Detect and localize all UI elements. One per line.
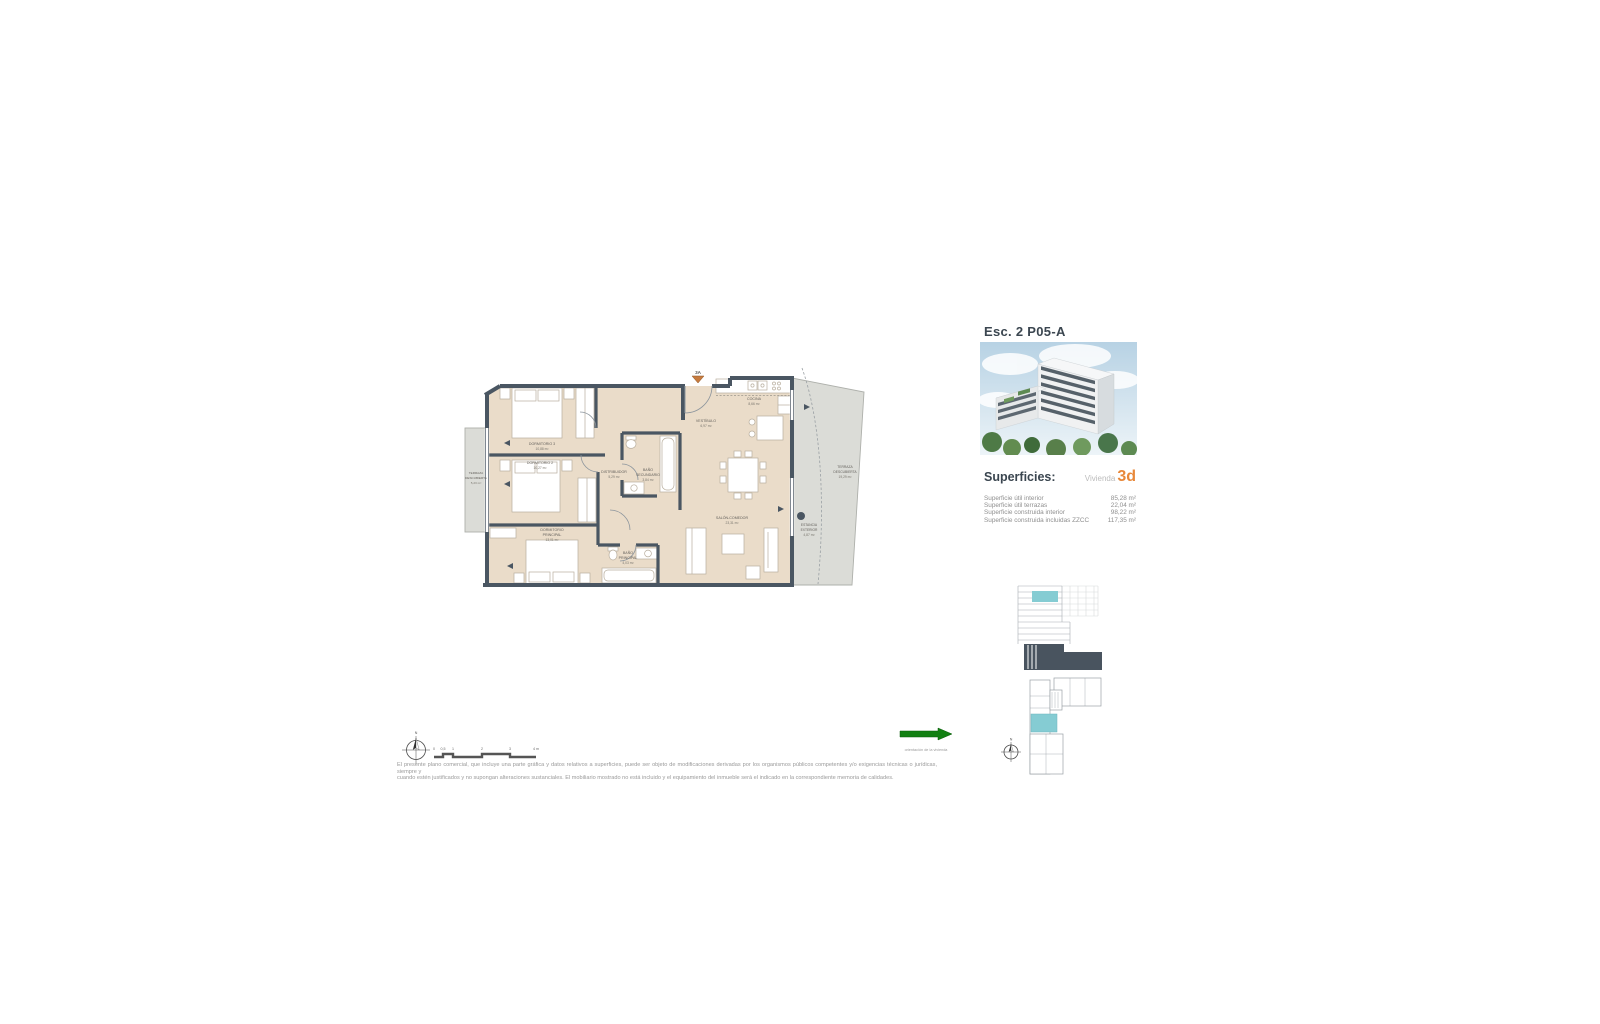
area-estancia: 4,87 m² [803, 533, 815, 537]
label-terraza-izq-1: TERRAZA [469, 471, 484, 475]
superficies-row: Superficie útil terrazas 22,04 m² [984, 502, 1136, 509]
keyplan-north-label: N [1010, 738, 1013, 742]
scale-bar: 0 0,5 1 2 3 4 m [433, 747, 539, 757]
superficies-row: Superficie construida incluidas ZZCC 117… [984, 517, 1136, 524]
superficies-row: Superficie construida interior 98,22 m² [984, 509, 1136, 516]
label-bano-principal-1: BAÑO [623, 550, 633, 555]
scale-tick: 4 m [533, 747, 539, 751]
disclaimer-text: El presente plano comercial, que incluye… [397, 762, 937, 782]
area-salon: 23,31 m² [725, 521, 739, 525]
superficies-row-value: 98,22 m² [1111, 509, 1136, 516]
label-terraza-der-2: DESCUBIERTA [833, 470, 857, 474]
entrance-arrow-icon [692, 376, 704, 383]
label-cocina: COCINA [747, 397, 762, 401]
superficies-row-value: 22,04 m² [1111, 502, 1136, 509]
building-section-diagram [998, 578, 1104, 672]
keyplan-compass-icon: N [1001, 738, 1021, 763]
compass-icon: N [402, 731, 430, 764]
label-terraza-der-1: TERRAZA [837, 465, 853, 469]
scale-tick: 3 [509, 747, 511, 751]
superficies-row-value: 117,35 m² [1108, 517, 1136, 524]
scale-bar-group: N 0 0,5 1 2 3 4 m [398, 726, 558, 766]
label-dormitorio-principal-2: PRINCIPAL [543, 533, 562, 537]
unit-title: Esc. 2 P05-A [984, 324, 1066, 339]
terrace-right [790, 368, 864, 585]
apartment-floor-plan: 3A DORMITORIO 3 10,88 m² DORMITORIO 2 10… [452, 348, 882, 598]
label-bano-secundario-1: BAÑO [643, 467, 653, 472]
scale-tick: 1 [452, 747, 454, 751]
area-dormitorio-principal: 13,01 m² [545, 538, 559, 542]
area-vestibulo: 6,97 m² [700, 424, 712, 428]
area-cocina: 8,66 m² [748, 402, 760, 406]
superficies-heading: Superficies: [984, 470, 1056, 484]
floorplan-sheet: 3A DORMITORIO 3 10,88 m² DORMITORIO 2 10… [0, 0, 1600, 1024]
orientation-legend: orientación de la vivienda [898, 726, 954, 752]
label-dormitorio3: DORMITORIO 3 [529, 442, 555, 446]
area-terraza-izq: 5,23 m² [471, 481, 482, 485]
label-estancia-2: EXTERIOR [801, 528, 818, 532]
superficies-row-value: 85,28 m² [1111, 495, 1136, 502]
area-dormitorio2: 10,27 m² [533, 466, 547, 470]
superficies-header: Superficies: Vivienda3d [984, 468, 1136, 486]
keyplan-highlighted-unit [1031, 714, 1057, 732]
disclaimer-line1: El presente plano comercial, que incluye… [397, 762, 937, 775]
orientation-caption: orientación de la vivienda [898, 748, 954, 752]
building-render-image [980, 342, 1137, 455]
label-distribuidor: DISTRIBUIDOR [601, 470, 627, 474]
area-dormitorio3: 10,88 m² [535, 447, 549, 451]
unit-type-label: Vivienda [1085, 474, 1116, 483]
scale-tick: 0 [433, 747, 435, 751]
orientation-arrow-icon [898, 726, 954, 742]
entrance-marker: 3A [692, 370, 704, 383]
section-highlighted-floor [1032, 591, 1058, 602]
superficies-row-label: Superficie útil terrazas [984, 502, 1047, 509]
area-distribuidor: 5,29 m² [608, 475, 620, 479]
unit-type-code: 3d [1117, 468, 1136, 485]
label-bano-secundario-2: SECUNDARIO [636, 473, 660, 477]
area-bano-principal: 4,03 m² [622, 561, 634, 565]
structural-column [797, 512, 805, 520]
scale-tick: 2 [481, 747, 483, 751]
label-vestibulo: VESTÍBULO [696, 419, 716, 423]
label-dormitorio2: DORMITORIO 2 [527, 461, 553, 465]
scale-tick: 0,5 [441, 747, 446, 751]
north-label: N [415, 731, 418, 735]
entrance-label: 3A [695, 370, 702, 375]
label-terraza-izq-2: DESCUBIERTA [465, 476, 488, 480]
unit-type: Vivienda3d [1085, 468, 1136, 486]
disclaimer-line2: cuando estén justificados y no supongan … [397, 775, 937, 782]
superficies-row-label: Superficie construida incluidas ZZCC [984, 517, 1089, 524]
area-bano-secundario: 3,84 m² [642, 478, 654, 482]
label-dormitorio-principal-1: DORMITORIO [540, 528, 563, 532]
terrace-left [465, 428, 487, 532]
floor-key-plan: N [1000, 676, 1104, 776]
superficies-rows: Superficie útil interior 85,28 m² Superf… [984, 495, 1136, 524]
superficies-panel: Superficies: Vivienda3d Superficie útil … [984, 468, 1136, 524]
superficies-row-label: Superficie construida interior [984, 509, 1065, 516]
furniture-bed-d3 [500, 388, 594, 438]
label-bano-principal-2: PRINCIPAL [619, 556, 638, 560]
label-estancia-1: ESTANCIA [801, 523, 818, 527]
superficies-row: Superficie útil interior 85,28 m² [984, 495, 1136, 502]
area-terraza-der: 19,29 m² [838, 475, 852, 479]
superficies-row-label: Superficie útil interior [984, 495, 1044, 502]
label-salon: SALÓN-COMEDOR [716, 515, 749, 520]
